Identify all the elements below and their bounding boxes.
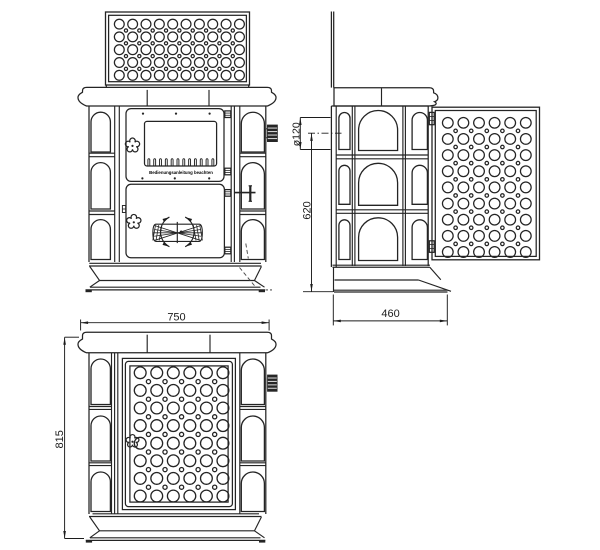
svg-text:ø120: ø120 [290,122,302,146]
svg-text:Bedienungsanleitung beachten: Bedienungsanleitung beachten [149,170,213,175]
svg-text:815: 815 [54,430,66,448]
svg-text:460: 460 [381,308,399,320]
svg-text:750: 750 [167,311,185,323]
svg-text:620: 620 [302,201,314,219]
